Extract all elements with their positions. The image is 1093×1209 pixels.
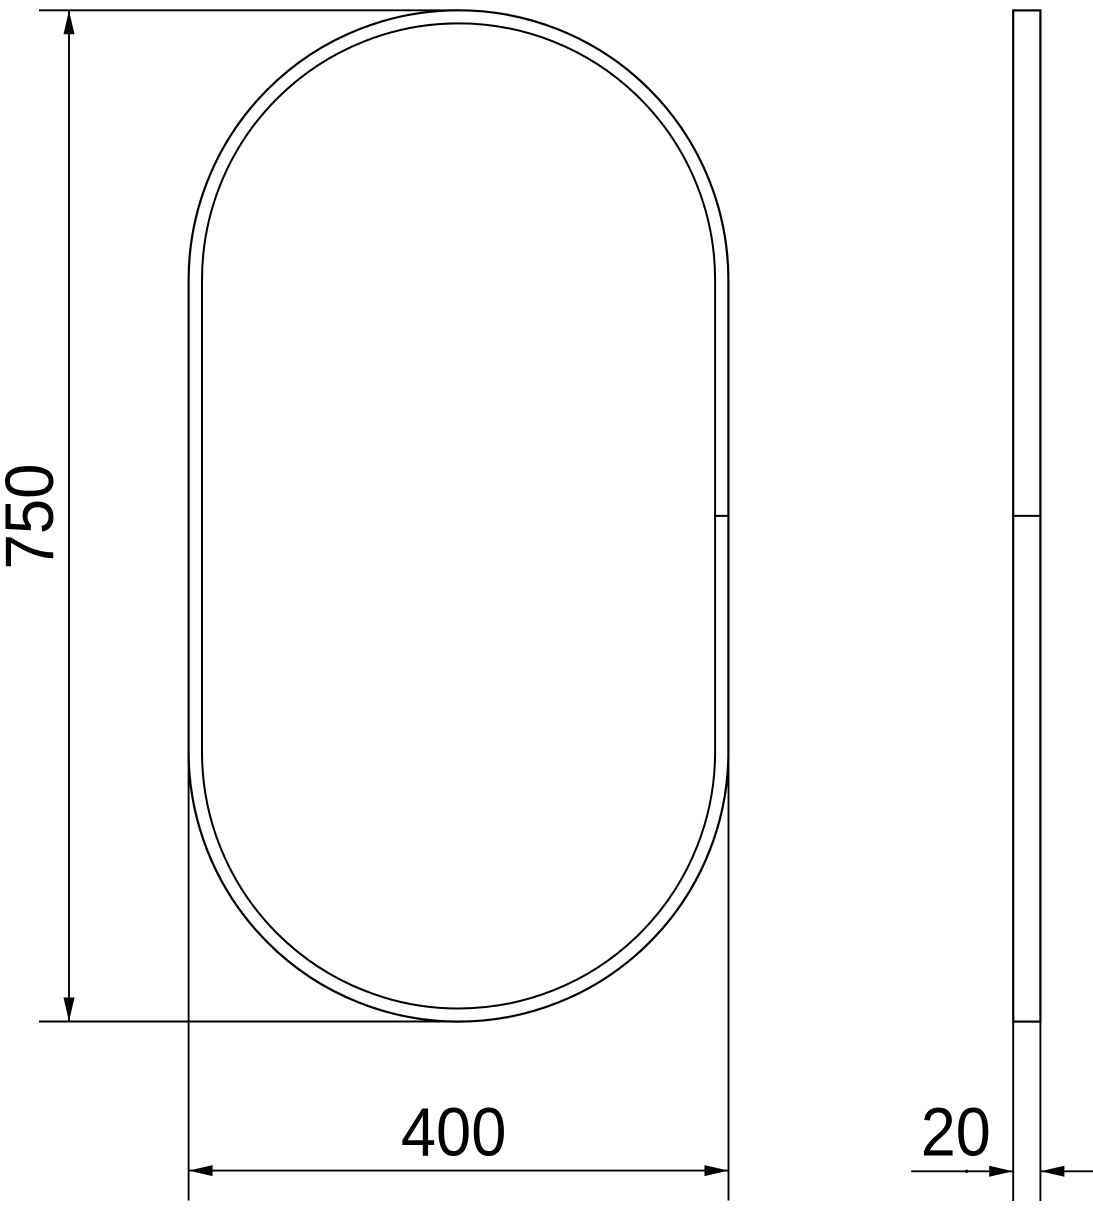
svg-text:400: 400 [401, 1094, 507, 1171]
svg-text:20: 20 [921, 1094, 991, 1171]
svg-text:750: 750 [0, 464, 68, 570]
